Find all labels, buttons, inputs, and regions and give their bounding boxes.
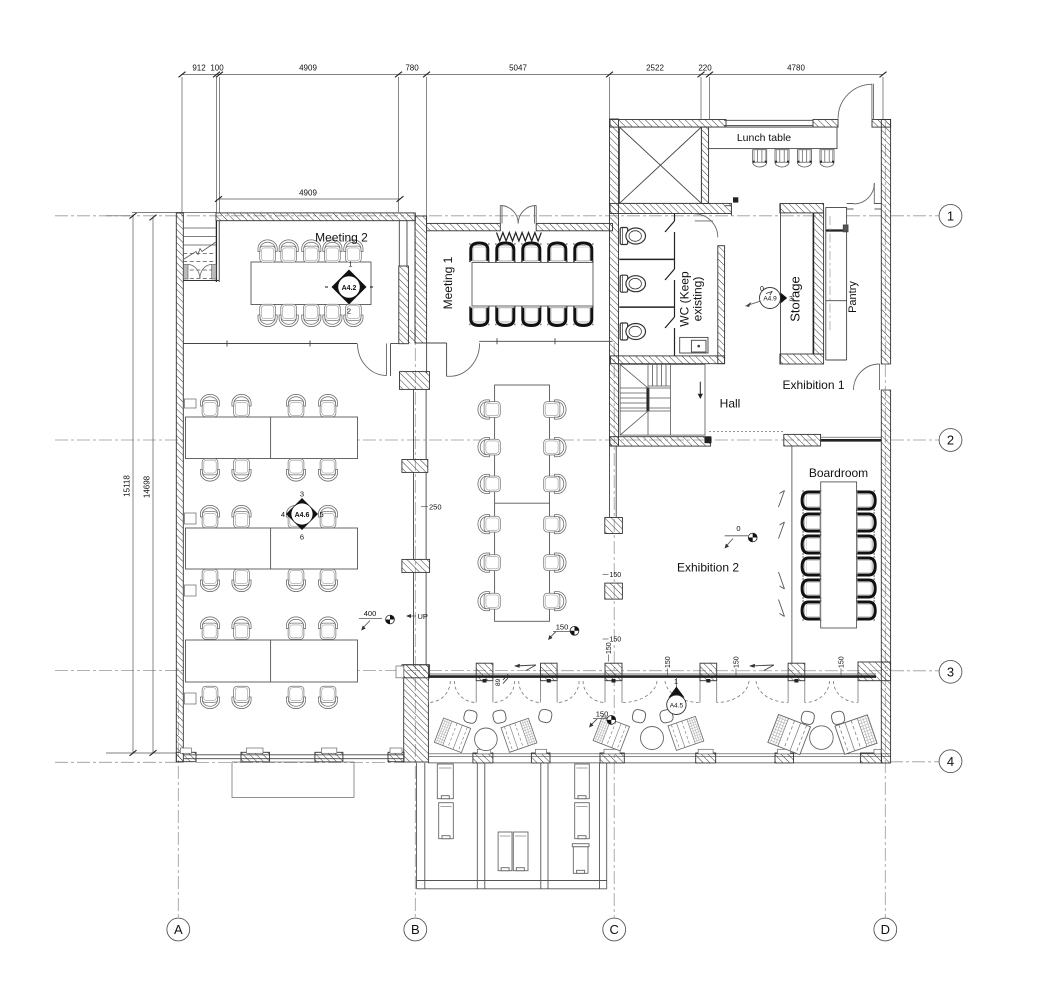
svg-text:Meeting 2: Meeting 2 [315, 231, 368, 245]
svg-text:912: 912 [192, 64, 206, 73]
svg-text:Pantry: Pantry [847, 281, 859, 313]
svg-text:4909: 4909 [299, 64, 317, 73]
svg-text:0: 0 [736, 524, 740, 533]
svg-text:Lunch table: Lunch table [737, 132, 791, 144]
svg-text:Boardroom: Boardroom [809, 466, 868, 480]
svg-text:C: C [610, 922, 619, 937]
svg-text:100: 100 [210, 64, 224, 73]
svg-text:15118: 15118 [123, 475, 132, 497]
svg-text:150: 150 [610, 572, 622, 579]
svg-text:existing): existing) [691, 277, 705, 322]
svg-text:780: 780 [405, 64, 419, 73]
svg-text:D: D [881, 922, 890, 937]
svg-text:4: 4 [947, 754, 954, 769]
svg-text:89: 89 [495, 678, 502, 686]
svg-text:150: 150 [734, 656, 741, 668]
svg-text:250: 250 [429, 503, 442, 512]
svg-text:220: 220 [698, 64, 712, 73]
svg-text:WC (Keep: WC (Keep [678, 271, 692, 327]
svg-text:2: 2 [347, 307, 351, 316]
svg-text:3: 3 [947, 665, 954, 680]
svg-text:5: 5 [320, 510, 324, 519]
svg-text:0: 0 [760, 286, 764, 293]
svg-text:A4.6: A4.6 [295, 512, 310, 519]
svg-text:B: B [411, 922, 420, 937]
svg-text:4780: 4780 [787, 64, 805, 73]
svg-text:2: 2 [947, 433, 954, 448]
svg-text:150: 150 [596, 709, 609, 718]
svg-text:UP: UP [418, 612, 428, 621]
svg-text:3: 3 [300, 490, 304, 499]
svg-text:Storage: Storage [788, 276, 803, 322]
svg-text:Hall: Hall [720, 397, 741, 411]
svg-text:150: 150 [606, 642, 613, 654]
svg-text:Exhibition 2: Exhibition 2 [677, 561, 739, 575]
svg-text:400: 400 [364, 609, 377, 618]
svg-text:1: 1 [674, 679, 678, 686]
svg-text:150: 150 [665, 656, 672, 668]
svg-text:150: 150 [556, 623, 569, 632]
svg-text:Exhibition 1: Exhibition 1 [782, 378, 844, 392]
svg-text:Meeting 1: Meeting 1 [441, 256, 455, 309]
svg-text:150: 150 [839, 656, 846, 668]
svg-text:1: 1 [348, 260, 352, 269]
svg-text:A4.5: A4.5 [670, 702, 684, 709]
svg-text:5047: 5047 [509, 64, 527, 73]
svg-text:6: 6 [300, 533, 304, 542]
svg-text:4909: 4909 [299, 189, 317, 198]
svg-text:1: 1 [947, 209, 954, 224]
svg-text:14698: 14698 [143, 475, 152, 498]
svg-text:4: 4 [281, 510, 285, 519]
svg-text:A: A [174, 922, 183, 937]
svg-text:A4.9: A4.9 [763, 296, 777, 303]
svg-text:A4.2: A4.2 [342, 285, 357, 292]
svg-text:2522: 2522 [646, 64, 664, 73]
